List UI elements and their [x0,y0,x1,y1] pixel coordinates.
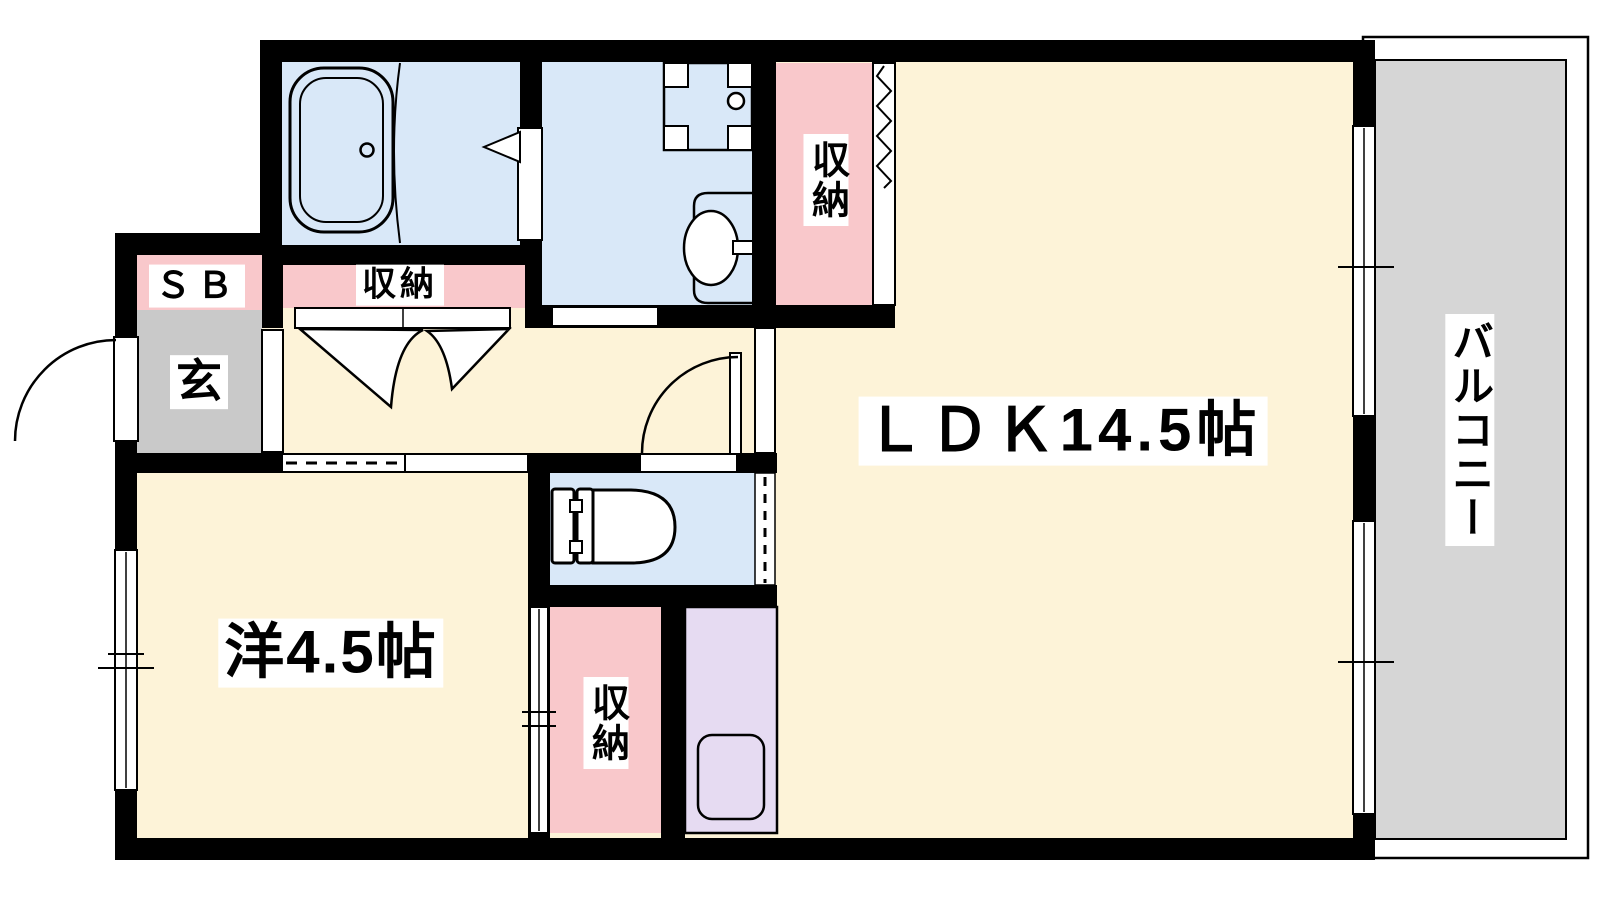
label-western-room: 洋4.5帖 [218,619,443,688]
entrance-swing-door [15,337,138,441]
wall-washroom-right [752,62,776,305]
wall-bath-bottom [260,243,542,265]
wall-top [260,40,1375,62]
bathroom [282,62,520,245]
label-storage-hall: 収納 [356,265,444,306]
wall-entrance-top [115,233,282,255]
wall-storage-kitchen [661,607,685,838]
floorplan-canvas: ＬＤＫ14.5帖 洋4.5帖 バルコニー 収納 収納 収納 ＳＢ 玄 [0,0,1600,900]
label-balcony: バルコニー [1445,314,1494,546]
label-ldk: ＬＤＫ14.5帖 [859,397,1268,466]
label-storage-upper: 収納 [803,134,848,226]
wall-toilet-bottom [528,585,777,607]
entrance-step [262,330,283,452]
accordion-door [873,63,895,305]
sliding-door-western-room [283,454,528,472]
wall-partition-chunk [755,453,777,473]
wall-bottom [115,838,1375,860]
label-storage-lower: 収納 [583,677,628,769]
toilet [552,489,675,563]
wall-bath-left [260,40,282,265]
wall-sb-divider [262,255,283,328]
label-shoe-box: ＳＢ [149,265,245,308]
toilet-side-partition [755,473,775,585]
hall-ldk-partition [755,328,775,453]
floorplan-drawing [0,0,1600,900]
washroom-door [552,307,658,326]
label-entrance: 玄 [170,355,228,409]
